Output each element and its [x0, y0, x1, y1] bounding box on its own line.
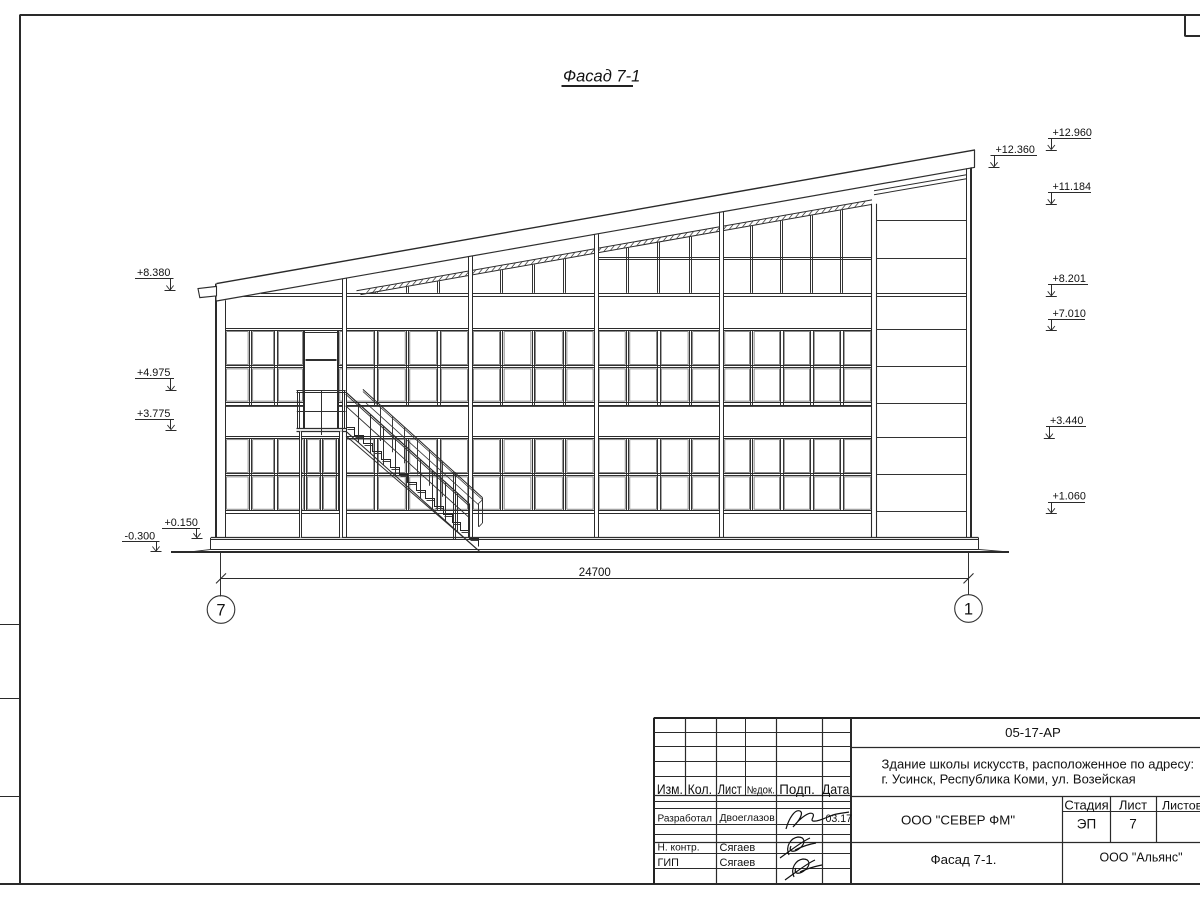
svg-text:7: 7 [1129, 817, 1137, 832]
svg-text:+11.184: +11.184 [1053, 181, 1092, 193]
svg-text:+8.201: +8.201 [1053, 273, 1086, 285]
svg-text:Фасад 7-1.: Фасад 7-1. [931, 852, 997, 867]
svg-text:+3.440: +3.440 [1050, 415, 1083, 427]
svg-text:Н. контр.: Н. контр. [658, 843, 700, 854]
svg-text:+0.150: +0.150 [165, 517, 198, 529]
svg-text:+4.975: +4.975 [137, 367, 170, 379]
svg-text:ООО "СЕВЕР ФМ": ООО "СЕВЕР ФМ" [901, 813, 1015, 828]
svg-text:03.17: 03.17 [826, 813, 853, 825]
svg-text:+1.060: +1.060 [1053, 491, 1086, 503]
svg-text:Разработал: Разработал [658, 813, 713, 825]
svg-text:Сягаев: Сягаев [720, 857, 756, 869]
svg-text:Фасад 7-1: Фасад 7-1 [563, 68, 640, 86]
svg-text:Сягаев: Сягаев [720, 842, 756, 854]
svg-text:+8.380: +8.380 [137, 267, 170, 279]
svg-text:г. Усинск, Республика Коми, ул: г. Усинск, Республика Коми, ул. Возейска… [882, 771, 1136, 786]
svg-text:Кол.: Кол. [688, 781, 713, 797]
svg-text:ЭП: ЭП [1077, 817, 1096, 832]
svg-text:Двоеглазов: Двоеглазов [720, 813, 776, 824]
svg-text:+7.010: +7.010 [1053, 308, 1086, 320]
svg-text:Подп.: Подп. [779, 781, 815, 797]
svg-text:Лист: Лист [1119, 797, 1147, 812]
svg-text:Стадия: Стадия [1064, 797, 1108, 812]
svg-text:ГИП: ГИП [658, 857, 679, 869]
svg-text:+3.775: +3.775 [137, 408, 170, 420]
svg-text:-0.300: -0.300 [125, 530, 156, 542]
svg-text:7: 7 [216, 602, 225, 620]
svg-text:Изм.: Изм. [657, 781, 683, 797]
svg-text:ООО "Альянс": ООО "Альянс" [1100, 850, 1183, 865]
svg-text:Листов: Листов [1162, 798, 1200, 812]
svg-text:Здание школы искусств, располо: Здание школы искусств, расположенное по … [882, 756, 1195, 771]
svg-text:+12.360: +12.360 [996, 144, 1035, 156]
svg-text:Лист: Лист [718, 781, 742, 797]
svg-text:1: 1 [964, 601, 973, 619]
svg-text:+12.960: +12.960 [1053, 127, 1092, 139]
svg-text:Дата: Дата [822, 781, 850, 797]
svg-text:05-17-АР: 05-17-АР [1005, 725, 1061, 740]
svg-text:№док.: №док. [747, 784, 775, 796]
svg-text:24700: 24700 [579, 567, 611, 579]
